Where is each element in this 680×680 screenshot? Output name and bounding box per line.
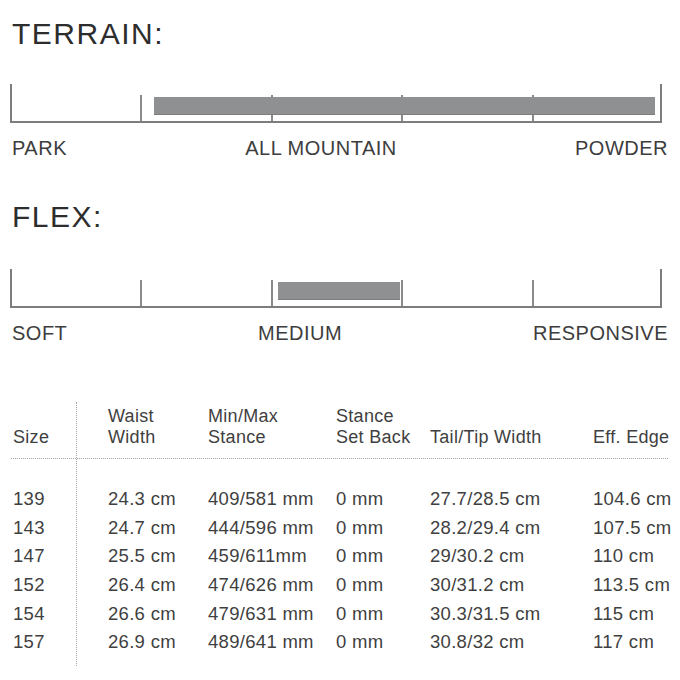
- flex-label-soft: SOFT: [12, 322, 67, 345]
- terrain-range-bar: [154, 97, 655, 115]
- column-header-tail-tip-width: Tail/Tip Width: [430, 404, 593, 448]
- cell-waist-width: 26.6 cm: [108, 603, 208, 625]
- cell-size: 143: [13, 517, 108, 539]
- table-row: 152 26.4 cm 474/626 mm 0 mm 30/31.2 cm 1…: [13, 571, 668, 600]
- cell-size: 152: [13, 574, 108, 596]
- cell-min-max-stance: 474/626 mm: [208, 574, 336, 596]
- cell-stance-set-back: 0 mm: [336, 574, 430, 596]
- cell-eff-edge: 104.6 cm: [593, 488, 668, 510]
- cell-tail-tip-width: 27.7/28.5 cm: [430, 488, 593, 510]
- spec-table-body: 139 24.3 cm 409/581 mm 0 mm 27.7/28.5 cm…: [13, 485, 668, 657]
- spec-table-header: Size Waist Width Min/Max Stance Stance S…: [13, 404, 668, 448]
- cell-waist-width: 26.9 cm: [108, 631, 208, 653]
- terrain-axis-left-edge: [10, 84, 12, 123]
- flex-label-responsive: RESPONSIVE: [533, 322, 668, 345]
- cell-stance-set-back: 0 mm: [336, 545, 430, 567]
- cell-stance-set-back: 0 mm: [336, 488, 430, 510]
- cell-min-max-stance: 489/641 mm: [208, 631, 336, 653]
- flex-axis-tick: [271, 280, 273, 308]
- cell-eff-edge: 115 cm: [593, 603, 668, 625]
- cell-min-max-stance: 459/611mm: [208, 545, 336, 567]
- cell-tail-tip-width: 30/31.2 cm: [430, 574, 593, 596]
- terrain-label-park: PARK: [12, 137, 67, 160]
- cell-size: 147: [13, 545, 108, 567]
- table-row: 139 24.3 cm 409/581 mm 0 mm 27.7/28.5 cm…: [13, 485, 668, 514]
- flex-axis-baseline: [10, 306, 662, 308]
- flex-axis-right-edge: [660, 269, 662, 308]
- column-header-waist-width: Waist Width: [108, 404, 208, 448]
- cell-min-max-stance: 479/631 mm: [208, 603, 336, 625]
- terrain-labels-row: PARK ALL MOUNTAIN POWDER: [12, 137, 668, 160]
- table-row: 143 24.7 cm 444/596 mm 0 mm 28.2/29.4 cm…: [13, 514, 668, 543]
- terrain-axis-right-edge: [660, 84, 662, 123]
- terrain-label-all-mountain: ALL MOUNTAIN: [245, 137, 397, 160]
- flex-labels-row: SOFT MEDIUM RESPONSIVE: [12, 322, 668, 345]
- terrain-axis-baseline: [10, 121, 662, 123]
- flex-axis-tick: [140, 280, 142, 308]
- terrain-section-title: TERRAIN:: [12, 17, 164, 51]
- flex-axis-left-edge: [10, 269, 12, 308]
- cell-eff-edge: 113.5 cm: [593, 574, 668, 596]
- cell-eff-edge: 117 cm: [593, 631, 668, 653]
- cell-stance-set-back: 0 mm: [336, 517, 430, 539]
- table-row: 154 26.6 cm 479/631 mm 0 mm 30.3/31.5 cm…: [13, 599, 668, 628]
- flex-scale-axis: [10, 269, 662, 308]
- column-header-size: Size: [13, 404, 108, 448]
- flex-axis-tick: [532, 280, 534, 308]
- terrain-label-powder: POWDER: [575, 137, 668, 160]
- column-header-stance-set-back: Stance Set Back: [336, 404, 430, 448]
- cell-tail-tip-width: 29/30.2 cm: [430, 545, 593, 567]
- cell-size: 154: [13, 603, 108, 625]
- cell-tail-tip-width: 30.3/31.5 cm: [430, 603, 593, 625]
- terrain-scale-axis: [10, 84, 662, 123]
- cell-waist-width: 25.5 cm: [108, 545, 208, 567]
- cell-size: 139: [13, 488, 108, 510]
- cell-waist-width: 26.4 cm: [108, 574, 208, 596]
- table-header-divider: [11, 458, 668, 459]
- flex-section-title: FLEX:: [12, 200, 103, 234]
- cell-waist-width: 24.3 cm: [108, 488, 208, 510]
- terrain-axis-tick: [140, 95, 142, 123]
- cell-min-max-stance: 444/596 mm: [208, 517, 336, 539]
- cell-eff-edge: 107.5 cm: [593, 517, 668, 539]
- cell-eff-edge: 110 cm: [593, 545, 668, 567]
- cell-tail-tip-width: 28.2/29.4 cm: [430, 517, 593, 539]
- cell-size: 157: [13, 631, 108, 653]
- cell-min-max-stance: 409/581 mm: [208, 488, 336, 510]
- column-header-min-max-stance: Min/Max Stance: [208, 404, 336, 448]
- cell-stance-set-back: 0 mm: [336, 631, 430, 653]
- table-row: 157 26.9 cm 489/641 mm 0 mm 30.8/32 cm 1…: [13, 628, 668, 657]
- cell-tail-tip-width: 30.8/32 cm: [430, 631, 593, 653]
- flex-label-medium: MEDIUM: [258, 322, 342, 345]
- flex-range-bar: [278, 282, 400, 300]
- cell-waist-width: 24.7 cm: [108, 517, 208, 539]
- table-row: 147 25.5 cm 459/611mm 0 mm 29/30.2 cm 11…: [13, 542, 668, 571]
- cell-stance-set-back: 0 mm: [336, 603, 430, 625]
- flex-axis-tick: [401, 280, 403, 308]
- column-header-eff-edge: Eff. Edge: [593, 404, 668, 448]
